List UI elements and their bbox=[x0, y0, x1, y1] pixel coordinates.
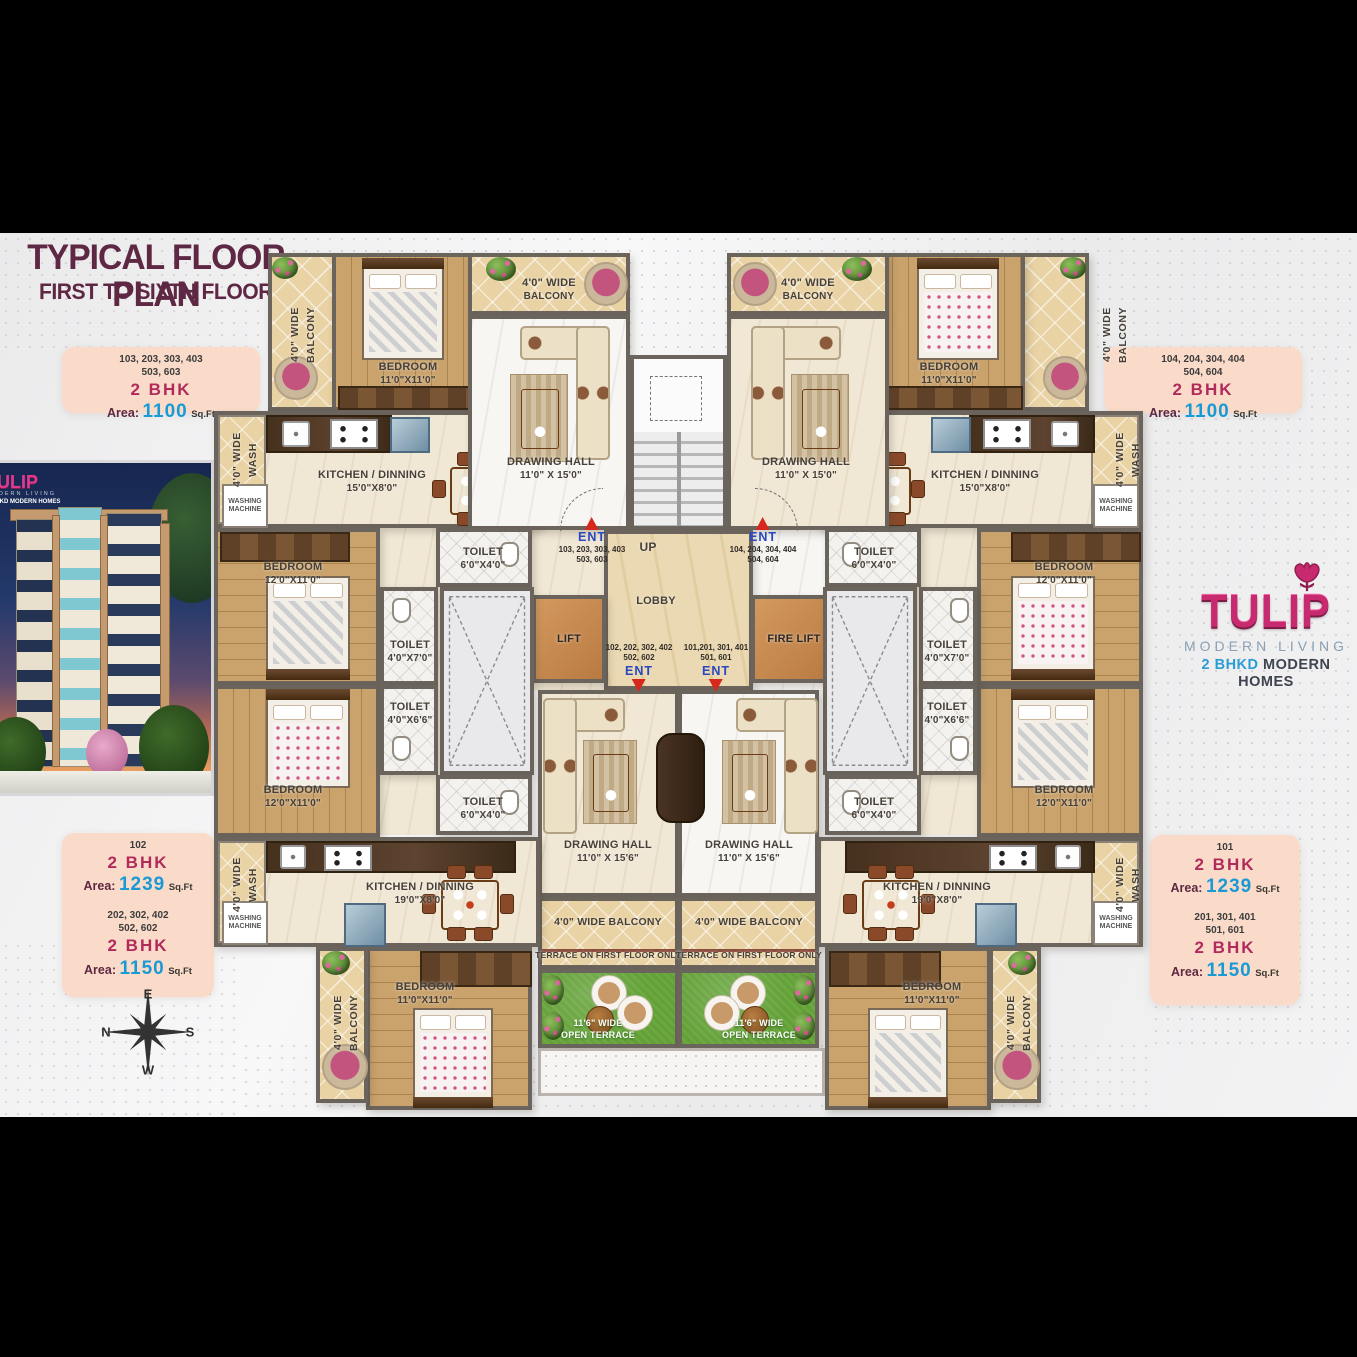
units-line2: 504, 604 bbox=[1104, 366, 1302, 379]
entry-arrow-icon bbox=[756, 517, 770, 530]
bhk-type: 2 BHK bbox=[62, 380, 260, 400]
sink bbox=[282, 421, 310, 447]
units-line1: 103, 203, 303, 403 bbox=[62, 353, 260, 366]
bhk-type: 2 BHK bbox=[1150, 938, 1300, 958]
wm-label2: MACHINE bbox=[229, 506, 262, 514]
wardrobe bbox=[338, 386, 482, 410]
rug bbox=[510, 374, 568, 462]
label-lobby: LOBBY bbox=[636, 594, 676, 608]
label-balcony: 4'0" WIDEBALCONY bbox=[781, 276, 835, 303]
label-fire-lift: FIRE LIFT bbox=[767, 632, 820, 646]
label-balcony: 4'0" WIDEBALCONY bbox=[288, 290, 320, 380]
area-value: 1100 bbox=[1184, 401, 1229, 422]
plant bbox=[793, 1012, 815, 1040]
label-bedroom: BEDROOM12'0"X11'0" bbox=[1035, 560, 1094, 587]
compass-e: E bbox=[144, 987, 153, 1002]
ent-label: ENT bbox=[684, 664, 749, 679]
area-value: 1239 bbox=[1206, 876, 1252, 897]
label-bedroom: BEDROOM11'0"X11'0" bbox=[920, 360, 979, 387]
toilet-fixture bbox=[950, 598, 969, 623]
plant bbox=[1060, 257, 1086, 279]
label-terrace-note: TERRACE ON FIRST FLOOR ONLY bbox=[676, 950, 822, 961]
papasan-chair bbox=[733, 262, 777, 306]
duct-x-icon bbox=[444, 591, 530, 771]
entry-arrow-icon bbox=[632, 679, 646, 692]
entrance-101: 101,201, 301, 401501, 601 ENT bbox=[684, 643, 749, 692]
wm-label2: MACHINE bbox=[1100, 506, 1133, 514]
units-line2: 503, 603 bbox=[62, 366, 260, 379]
photo-logo-homes: MODERN HOMES bbox=[10, 499, 60, 505]
wardrobe bbox=[1011, 532, 1141, 562]
sink bbox=[1055, 845, 1081, 869]
unit-numbers: 102 bbox=[62, 839, 214, 852]
building-render-photo: TULIP MODERN LIVING 2 BHKD MODERN HOMES bbox=[0, 460, 214, 796]
label-wash: 4'0" WIDEWASH bbox=[230, 852, 262, 918]
area-unit: Sq.Ft bbox=[169, 882, 193, 893]
label-balcony: 4'0" WIDEBALCONY bbox=[1004, 980, 1036, 1066]
label-wash: 4'0" WIDEWASH bbox=[1113, 852, 1145, 918]
unit-card-104: 104, 204, 304, 404504, 604 2 BHK Area: 1… bbox=[1104, 347, 1302, 413]
bed bbox=[1011, 689, 1095, 788]
coffee-table bbox=[521, 389, 559, 449]
toilet-4x66-right bbox=[919, 685, 977, 775]
photo-logo-bhkd: 2 BHKD bbox=[0, 499, 8, 505]
area-value: 1150 bbox=[1206, 960, 1251, 981]
wm-label2: MACHINE bbox=[1100, 923, 1133, 931]
ent-label: ENT bbox=[606, 664, 673, 679]
rug bbox=[791, 374, 849, 462]
units-line1: 102 bbox=[62, 839, 214, 852]
sofa bbox=[543, 698, 577, 834]
coffee-table bbox=[593, 754, 628, 812]
plant bbox=[793, 975, 815, 1005]
top-letterbox bbox=[0, 0, 1357, 233]
plant bbox=[842, 257, 872, 281]
coffee-table bbox=[732, 754, 767, 812]
floor-plan-poster: TYPICAL FLOOR PLAN FIRST TO SIXTH FLOOR … bbox=[0, 0, 1357, 1357]
brand-subtag: 2 BHKD MODERN HOMES bbox=[1178, 657, 1354, 692]
refrigerator bbox=[390, 417, 430, 453]
wardrobe bbox=[879, 386, 1023, 410]
duct-shaft-left bbox=[440, 587, 534, 775]
units-line2: 501, 601 bbox=[1150, 924, 1300, 937]
label-toilet: TOILET4'0"X6'6" bbox=[388, 700, 433, 727]
plant bbox=[486, 257, 516, 281]
label-up: UP bbox=[639, 540, 656, 556]
unit-card-103: 103, 203, 303, 403503, 603 2 BHK Area: 1… bbox=[62, 347, 260, 413]
label-drawing-hall: DRAWING HALL11'0" X 15'6" bbox=[705, 838, 793, 865]
wm-label1: WASHING bbox=[1099, 498, 1132, 506]
bhk-type: 2 BHK bbox=[62, 853, 214, 873]
refrigerator bbox=[344, 903, 386, 947]
label-toilet: TOILET6'0"X4'0" bbox=[852, 795, 897, 822]
area-row: Area: 1150 Sq.Ft bbox=[1150, 960, 1300, 983]
building-glass-balconies bbox=[58, 507, 102, 767]
toilet-fixture bbox=[392, 598, 411, 623]
bhk-type: 2 BHK bbox=[1104, 380, 1302, 400]
bhk-type: 2 BHK bbox=[1150, 855, 1300, 875]
units-line1: 101 bbox=[1150, 841, 1300, 854]
page-subtitle: FIRST TO SIXTH FLOOR bbox=[14, 280, 298, 304]
wm-label2: MACHINE bbox=[229, 923, 262, 931]
compass-n: N bbox=[101, 1025, 110, 1040]
label-balcony: 4'0" WIDEBALCONY bbox=[1100, 290, 1132, 380]
unit-card-101: 101 2 BHK Area: 1239 Sq.Ft 201, 301, 401… bbox=[1150, 835, 1300, 1005]
area-label: Area: bbox=[1149, 406, 1181, 420]
plant bbox=[542, 975, 564, 1005]
label-kitchen: KITCHEN / DINNING15'0"X8'0" bbox=[318, 468, 426, 495]
label-balcony: 4'0" WIDE BALCONY bbox=[695, 916, 803, 930]
rug bbox=[583, 740, 637, 824]
ent-units: 101,201, 301, 401501, 601 bbox=[684, 643, 749, 664]
bed bbox=[1011, 576, 1095, 680]
refrigerator bbox=[975, 903, 1017, 947]
label-kitchen: KITCHEN / DINNING15'0"X8'0" bbox=[931, 468, 1039, 495]
entry-arrow-icon bbox=[585, 517, 599, 530]
label-balcony: 4'0" WIDEBALCONY bbox=[331, 980, 363, 1066]
label-bedroom: BEDROOM11'0"X11'0" bbox=[379, 360, 438, 387]
area-row: Area: 1239 Sq.Ft bbox=[1150, 876, 1300, 899]
stove bbox=[983, 419, 1031, 449]
label-bedroom: BEDROOM11'0"X11'0" bbox=[903, 980, 962, 1007]
unit-card-102: 102 2 BHK Area: 1239 Sq.Ft 202, 302, 402… bbox=[62, 833, 214, 997]
area-row: Area: 1239 Sq.Ft bbox=[62, 874, 214, 897]
area-value: 1150 bbox=[119, 958, 164, 979]
area-label: Area: bbox=[1171, 965, 1203, 979]
label-balcony: 4'0" WIDE BALCONY bbox=[554, 916, 662, 930]
label-drawing-hall: DRAWING HALL11'0" X 15'0" bbox=[507, 455, 595, 482]
flowering-tree bbox=[86, 729, 128, 777]
plant bbox=[322, 951, 350, 975]
stair-path bbox=[650, 376, 702, 421]
bed bbox=[413, 1008, 493, 1108]
units-line1: 202, 302, 402 bbox=[62, 909, 214, 922]
area-label: Area: bbox=[107, 406, 139, 420]
plant bbox=[272, 257, 298, 279]
entrance-103: ENT 103, 203, 303, 403503, 603 bbox=[559, 517, 626, 566]
unit-numbers: 101 bbox=[1150, 841, 1300, 854]
label-kitchen: KITCHEN / DINNING19'0"X8'0" bbox=[366, 880, 474, 907]
sofa bbox=[576, 326, 610, 460]
ground bbox=[0, 771, 211, 793]
label-toilet: TOILET4'0"X7'0" bbox=[388, 638, 433, 665]
tv-unit bbox=[656, 733, 705, 823]
label-bedroom: BEDROOM12'0"X11'0" bbox=[264, 783, 323, 810]
bed bbox=[266, 689, 350, 788]
ent-units: 104, 204, 304, 404504, 604 bbox=[730, 545, 797, 566]
refrigerator bbox=[931, 417, 971, 453]
label-open-terrace: 11'6" WIDEOPEN TERRACE bbox=[722, 1018, 796, 1041]
brand-logo: TULIP MODERN LIVING 2 BHKD MODERN HOMES bbox=[1178, 588, 1354, 692]
label-bedroom: BEDROOM12'0"X11'0" bbox=[264, 560, 323, 587]
label-drawing-hall: DRAWING HALL11'0" X 15'6" bbox=[564, 838, 652, 865]
bhk-type: 2 BHK bbox=[62, 936, 214, 956]
building-column bbox=[52, 515, 60, 767]
unit-numbers: 104, 204, 304, 404504, 604 bbox=[1104, 353, 1302, 379]
label-toilet: TOILET6'0"X4'0" bbox=[461, 795, 506, 822]
ground-plinth bbox=[538, 1048, 825, 1096]
label-wash: 4'0" WIDEWASH bbox=[230, 425, 262, 495]
brand-name: TULIP bbox=[1183, 588, 1348, 634]
ent-units: 102, 202, 302, 402502, 602 bbox=[606, 643, 673, 664]
toilet-fixture bbox=[950, 736, 969, 761]
label-bedroom: BEDROOM11'0"X11'0" bbox=[396, 980, 455, 1007]
stove bbox=[324, 845, 372, 871]
papasan-chair bbox=[1043, 356, 1087, 400]
entrance-102: 102, 202, 302, 402502, 602 ENT bbox=[606, 643, 673, 692]
rug bbox=[722, 740, 776, 824]
unit-numbers: 103, 203, 303, 403503, 603 bbox=[62, 353, 260, 379]
label-toilet: TOILET4'0"X7'0" bbox=[925, 638, 970, 665]
brand-tagline: MODERN LIVING bbox=[1178, 638, 1354, 655]
stair-rail bbox=[677, 432, 681, 526]
bed bbox=[868, 1008, 948, 1108]
units-line1: 104, 204, 304, 404 bbox=[1104, 353, 1302, 366]
bottom-letterbox bbox=[0, 1117, 1357, 1357]
sofa bbox=[751, 326, 785, 460]
label-kitchen: KITCHEN / DINNING19'0"X8'0" bbox=[883, 880, 991, 907]
area-unit: Sq.Ft bbox=[1255, 968, 1279, 979]
ent-label: ENT bbox=[559, 530, 626, 545]
area-label: Area: bbox=[84, 963, 116, 977]
toilet-fixture bbox=[392, 736, 411, 761]
wardrobe bbox=[220, 532, 350, 562]
duct-x-icon bbox=[827, 591, 913, 771]
area-unit: Sq.Ft bbox=[1233, 409, 1257, 420]
bed bbox=[362, 258, 444, 360]
photo-logo-sub: 2 BHKD MODERN HOMES bbox=[0, 499, 60, 507]
papasan-chair bbox=[584, 262, 628, 306]
stove bbox=[330, 419, 378, 449]
label-lift: LIFT bbox=[557, 632, 581, 646]
label-drawing-hall: DRAWING HALL11'0" X 15'0" bbox=[762, 455, 850, 482]
plant bbox=[1008, 951, 1036, 975]
label-toilet: TOILET4'0"X6'6" bbox=[925, 700, 970, 727]
ent-label: ENT bbox=[730, 530, 797, 545]
units-line1: 201, 301, 401 bbox=[1150, 911, 1300, 924]
units-line2: 502, 602 bbox=[62, 922, 214, 935]
unit-numbers: 201, 301, 401501, 601 bbox=[1150, 911, 1300, 937]
staircase bbox=[630, 355, 727, 530]
ent-units: 103, 203, 303, 403503, 603 bbox=[559, 545, 626, 566]
unit-numbers: 202, 302, 402502, 602 bbox=[62, 909, 214, 935]
wm-label1: WASHING bbox=[228, 498, 261, 506]
photo-logo: TULIP MODERN LIVING 2 BHKD MODERN HOMES bbox=[0, 473, 60, 506]
sofa bbox=[784, 698, 818, 834]
area-value: 1239 bbox=[119, 874, 165, 895]
brand-bhkd: 2 BHKD bbox=[1202, 657, 1259, 673]
area-label: Area: bbox=[84, 879, 116, 893]
area-unit: Sq.Ft bbox=[191, 409, 215, 420]
label-toilet: TOILET6'0"X4'0" bbox=[461, 545, 506, 572]
sink bbox=[280, 845, 306, 869]
coffee-table bbox=[802, 389, 840, 449]
compass-w: W bbox=[142, 1063, 154, 1078]
label-open-terrace: 11'6" WIDEOPEN TERRACE bbox=[561, 1018, 635, 1041]
compass-s: S bbox=[186, 1025, 195, 1040]
label-terrace-note: TERRACE ON FIRST FLOOR ONLY bbox=[535, 950, 681, 961]
area-label: Area: bbox=[1171, 881, 1203, 895]
bed bbox=[917, 258, 999, 360]
toilet-4x66-left bbox=[380, 685, 438, 775]
label-balcony: 4'0" WIDEBALCONY bbox=[522, 276, 576, 303]
photo-logo-name: TULIP bbox=[0, 473, 60, 491]
stove bbox=[989, 845, 1037, 871]
entrance-104: ENT 104, 204, 304, 404504, 604 bbox=[730, 517, 797, 566]
entry-arrow-icon bbox=[709, 679, 723, 692]
label-wash: 4'0" WIDEWASH bbox=[1113, 425, 1145, 495]
photo-logo-tagline: MODERN LIVING bbox=[0, 491, 60, 499]
area-value: 1100 bbox=[142, 401, 187, 422]
duct-shaft-right bbox=[823, 587, 917, 775]
sink bbox=[1051, 421, 1079, 447]
label-bedroom: BEDROOM12'0"X11'0" bbox=[1035, 783, 1094, 810]
label-toilet: TOILET6'0"X4'0" bbox=[852, 545, 897, 572]
area-unit: Sq.Ft bbox=[1256, 884, 1280, 895]
bed bbox=[266, 576, 350, 680]
area-unit: Sq.Ft bbox=[168, 966, 192, 977]
area-row: Area: 1150 Sq.Ft bbox=[62, 958, 214, 981]
